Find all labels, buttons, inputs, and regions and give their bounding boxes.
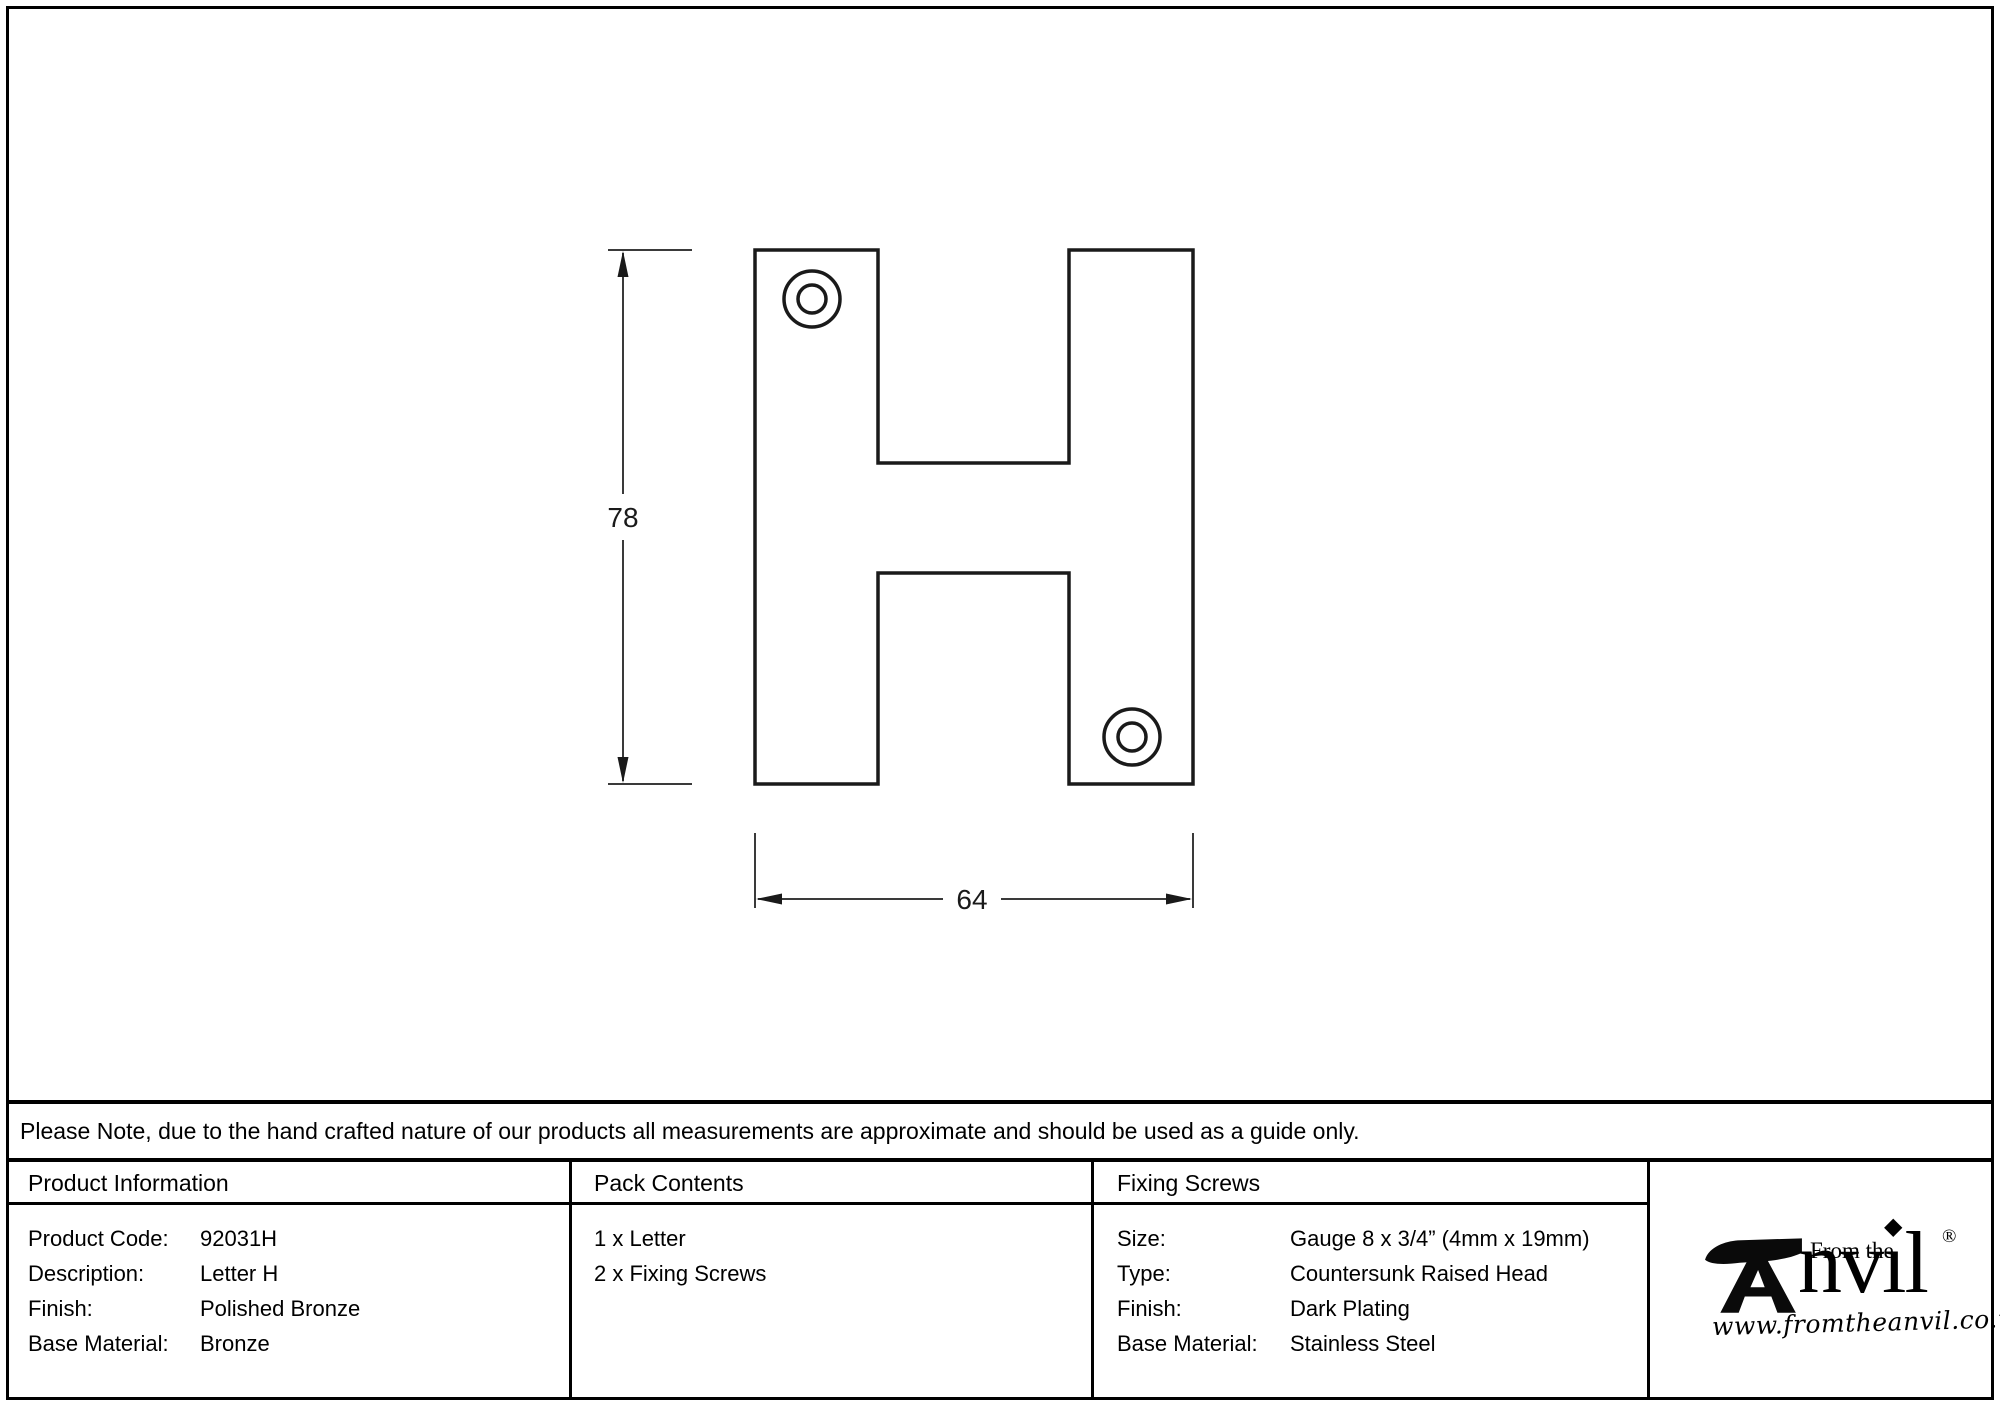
table-row: Base Material: Bronze	[28, 1326, 360, 1361]
measurement-disclaimer: Please Note, due to the hand crafted nat…	[20, 1104, 1360, 1158]
finish-value: Polished Bronze	[200, 1291, 360, 1326]
fixing-screws-rows: Size: Gauge 8 x 3/4” (4mm x 19mm) Type: …	[1117, 1221, 1590, 1361]
table-row: Size: Gauge 8 x 3/4” (4mm x 19mm)	[1117, 1221, 1590, 1256]
brand-logo: From the nvı◆l ® www.fromtheanvil.co.uk	[1650, 1162, 1994, 1397]
letter-h-outline	[755, 250, 1193, 784]
diamond-tittle-icon: ◆	[1884, 1215, 1902, 1239]
screw-hole-top-icon	[784, 271, 840, 327]
table-row: Type: Countersunk Raised Head	[1117, 1256, 1590, 1291]
registered-trademark-icon: ®	[1942, 1226, 1956, 1248]
table-row: Base Material: Stainless Steel	[1117, 1326, 1590, 1361]
letter-h-technical-drawing: 78 64	[0, 0, 2000, 1100]
finish-label: Finish:	[28, 1291, 200, 1326]
base-material-value: Bronze	[200, 1326, 270, 1361]
description-label: Description:	[28, 1256, 200, 1291]
width-dim-label: 64	[956, 884, 987, 915]
width-dim-arrow-right	[1166, 894, 1192, 905]
pack-contents-rows: 1 x Letter 2 x Fixing Screws	[594, 1221, 766, 1291]
product-code-label: Product Code:	[28, 1221, 200, 1256]
column-header-product-information: Product Information	[28, 1164, 229, 1202]
table-divider-2	[1091, 1162, 1094, 1397]
width-dim-arrow-left	[756, 894, 782, 905]
brand-letter-i: ı◆	[1882, 1220, 1904, 1308]
screw-size-value: Gauge 8 x 3/4” (4mm x 19mm)	[1290, 1221, 1590, 1256]
table-row: Finish: Polished Bronze	[28, 1291, 360, 1326]
screw-finish-label: Finish:	[1117, 1291, 1290, 1326]
table-divider-1	[569, 1162, 572, 1397]
table-row: Product Code: 92031H	[28, 1221, 360, 1256]
screw-hole-bottom-icon	[1104, 709, 1160, 765]
table-row: Description: Letter H	[28, 1256, 360, 1291]
pack-item-letter: 1 x Letter	[594, 1221, 686, 1256]
pack-item-screws: 2 x Fixing Screws	[594, 1256, 766, 1291]
column-header-fixing-screws: Fixing Screws	[1117, 1164, 1260, 1202]
description-value: Letter H	[200, 1256, 278, 1291]
brand-prefix: nv	[1798, 1215, 1882, 1312]
screw-base-material-label: Base Material:	[1117, 1326, 1290, 1361]
list-item: 1 x Letter	[594, 1221, 766, 1256]
table-header-divider	[9, 1202, 1647, 1205]
spec-sheet-page: 78 64 Please Note, due to the hand craft…	[0, 0, 2000, 1406]
screw-base-material-value: Stainless Steel	[1290, 1326, 1436, 1361]
list-item: 2 x Fixing Screws	[594, 1256, 766, 1291]
table-row: Finish: Dark Plating	[1117, 1291, 1590, 1326]
height-dim-arrow-up	[618, 251, 629, 277]
brand-suffix: l	[1904, 1215, 1926, 1312]
product-code-value: 92031H	[200, 1221, 277, 1256]
product-information-rows: Product Code: 92031H Description: Letter…	[28, 1221, 360, 1361]
column-header-pack-contents: Pack Contents	[594, 1164, 744, 1202]
anvil-icon	[1703, 1233, 1805, 1313]
base-material-label: Base Material:	[28, 1326, 200, 1361]
screw-finish-value: Dark Plating	[1290, 1291, 1410, 1326]
screw-type-value: Countersunk Raised Head	[1290, 1256, 1548, 1291]
logo-brand-text: nvı◆l	[1798, 1220, 1927, 1308]
screw-size-label: Size:	[1117, 1221, 1290, 1256]
height-dim-label: 78	[607, 502, 638, 533]
height-dim-arrow-down	[618, 757, 629, 783]
screw-type-label: Type:	[1117, 1256, 1290, 1291]
